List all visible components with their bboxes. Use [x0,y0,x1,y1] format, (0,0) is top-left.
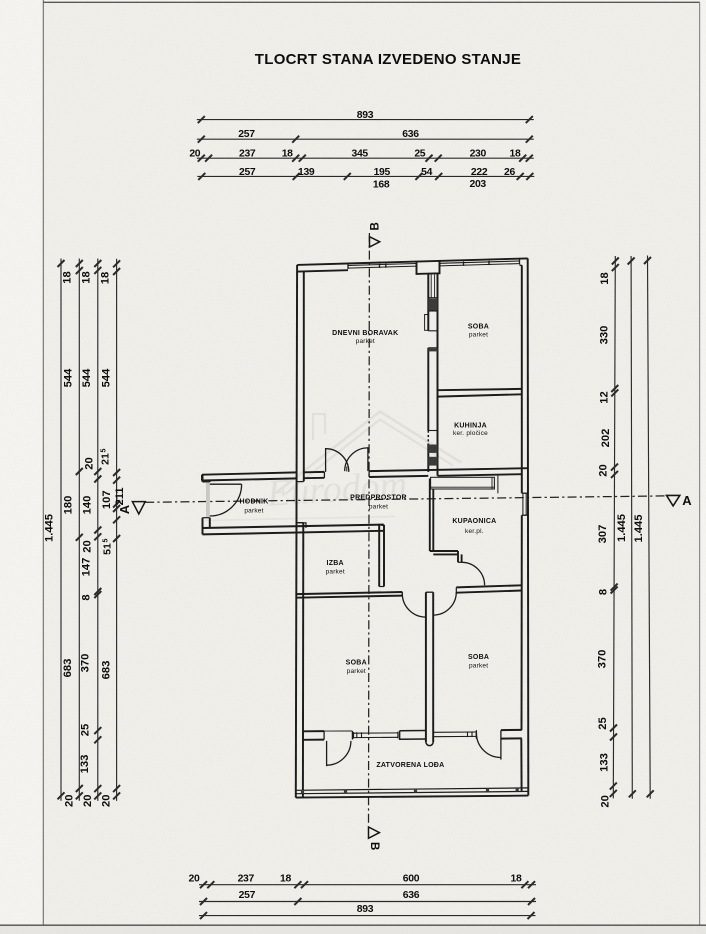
svg-text:20: 20 [599,795,611,807]
svg-text:8: 8 [81,594,93,600]
svg-text:683: 683 [100,661,112,680]
svg-text:20: 20 [82,540,94,552]
svg-text:257: 257 [239,890,256,901]
svg-text:SOBA: SOBA [346,659,367,666]
svg-text:330: 330 [599,326,611,345]
svg-text:636: 636 [402,129,419,140]
svg-text:307: 307 [597,525,609,544]
svg-text:544: 544 [81,368,93,387]
svg-text:B: B [368,842,380,850]
svg-text:parket: parket [469,332,488,339]
svg-text:21: 21 [100,453,112,465]
svg-text:133: 133 [598,753,610,772]
svg-text:18: 18 [510,149,521,160]
svg-text:893: 893 [357,904,374,915]
svg-text:345: 345 [351,149,368,160]
svg-text:26: 26 [504,167,515,178]
svg-text:147: 147 [81,558,93,577]
svg-text:51: 51 [102,543,114,555]
svg-text:A: A [682,493,692,508]
svg-text:5: 5 [100,448,107,452]
svg-text:683: 683 [62,659,74,678]
svg-text:195: 195 [374,167,391,178]
svg-text:202: 202 [600,429,612,448]
svg-text:18: 18 [282,149,293,160]
svg-text:IZBA: IZBA [327,560,344,567]
svg-text:140: 140 [82,496,94,515]
svg-text:KUHINJA: KUHINJA [454,422,487,429]
svg-text:20: 20 [189,149,200,160]
svg-text:257: 257 [238,129,255,140]
svg-text:544: 544 [101,368,113,387]
svg-text:20: 20 [101,795,113,807]
svg-text:5: 5 [102,538,109,542]
svg-text:SOBA: SOBA [468,323,489,330]
svg-text:107: 107 [101,490,113,509]
svg-text:18: 18 [81,271,93,283]
svg-text:25: 25 [414,149,425,160]
svg-text:20: 20 [598,464,610,476]
svg-text:237: 237 [238,873,255,884]
svg-text:18: 18 [280,873,291,884]
svg-text:230: 230 [470,149,487,160]
svg-text:SOBA: SOBA [468,654,489,661]
svg-text:ker. pločice: ker. pločice [453,430,488,437]
svg-text:25: 25 [80,724,92,736]
svg-text:133: 133 [79,755,91,774]
svg-text:parket: parket [244,507,263,514]
svg-text:139: 139 [298,167,315,178]
svg-text:18: 18 [100,272,112,284]
svg-text:636: 636 [403,890,420,901]
svg-text:18: 18 [511,873,522,884]
svg-text:parket: parket [347,668,366,675]
svg-text:54: 54 [421,167,432,178]
svg-text:257: 257 [239,167,256,178]
svg-text:ZATVORENA LOĐA: ZATVORENA LOĐA [376,762,444,769]
svg-text:A: A [117,504,132,514]
svg-text:18: 18 [62,271,74,283]
svg-text:203: 203 [469,179,486,190]
svg-text:893: 893 [357,110,374,121]
svg-text:KUPAONICA: KUPAONICA [452,518,496,525]
svg-text:parket: parket [369,503,388,510]
svg-text:1.445: 1.445 [616,514,628,542]
svg-text:237: 237 [239,149,256,160]
svg-text:TLOCRT STANA IZVEDENO STANJE: TLOCRT STANA IZVEDENO STANJE [255,51,521,68]
svg-text:20: 20 [82,795,94,807]
svg-text:parket: parket [356,338,375,345]
svg-text:544: 544 [63,368,75,387]
svg-text:180: 180 [63,496,75,515]
svg-text:222: 222 [471,167,488,178]
svg-text:18: 18 [599,272,611,284]
svg-text:PREDPROSTOR: PREDPROSTOR [350,495,407,502]
svg-text:370: 370 [80,654,92,673]
svg-text:1.445: 1.445 [44,514,56,542]
svg-text:211: 211 [114,487,126,505]
svg-text:DNEVNI BORAVAK: DNEVNI BORAVAK [332,330,398,337]
svg-text:ker.pl.: ker.pl. [465,528,484,535]
svg-text:25: 25 [597,717,609,729]
svg-text:20: 20 [84,457,96,469]
svg-text:20: 20 [64,795,76,807]
svg-text:12: 12 [599,391,611,403]
svg-text:168: 168 [373,180,390,191]
svg-text:1.445: 1.445 [633,515,645,543]
svg-text:8: 8 [598,589,610,595]
svg-text:HODNIK: HODNIK [239,498,268,505]
svg-text:parket: parket [469,662,488,669]
svg-text:20: 20 [189,873,200,884]
svg-text:600: 600 [403,873,420,884]
svg-text:370: 370 [597,650,609,669]
svg-text:parket: parket [326,569,345,576]
svg-text:B: B [370,222,382,230]
